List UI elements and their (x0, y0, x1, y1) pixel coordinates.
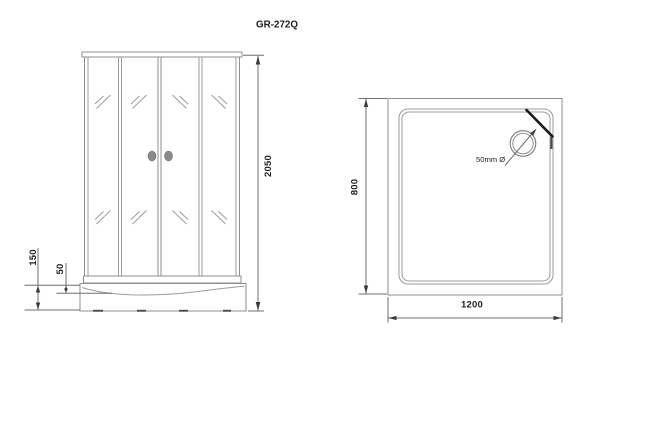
shower-tray-front (80, 284, 246, 312)
drain-leader-line (505, 130, 536, 166)
door-handle-left (148, 151, 156, 161)
drain-diameter-label: 50mm Ø (476, 155, 505, 164)
door-handle-right (165, 151, 173, 161)
door-mullions (119, 57, 203, 276)
model-title: GR-272Q (256, 20, 298, 31)
tray-rim-outer (399, 109, 553, 284)
drawing-svg: GR-272Q (0, 0, 650, 427)
cabin-top-cap (82, 52, 242, 57)
dim-tray-depth: 800 (350, 99, 388, 295)
cabin-side-frames (85, 57, 240, 276)
dim-tray-height: 150 (25, 248, 81, 310)
top-view: 50mm Ø 1200 800 (350, 99, 563, 323)
dim-height-label: 2050 (263, 155, 274, 177)
technical-drawing-canvas: GR-272Q (0, 0, 650, 427)
dim-overall-height: 2050 (243, 55, 274, 311)
dim-tray-width: 1200 (388, 297, 562, 323)
tray-apron-curve (82, 286, 245, 295)
dim-depth-label: 800 (350, 179, 361, 195)
tray-rim-inner (402, 112, 550, 281)
dim-tray-height-label: 150 (28, 249, 39, 265)
bottom-rail (84, 276, 242, 283)
dim-width-label: 1200 (461, 300, 483, 311)
front-view: 2050 150 50 (25, 52, 275, 312)
dim-tray-lip-label: 50 (55, 264, 66, 275)
tray-outline-outer (388, 99, 562, 296)
